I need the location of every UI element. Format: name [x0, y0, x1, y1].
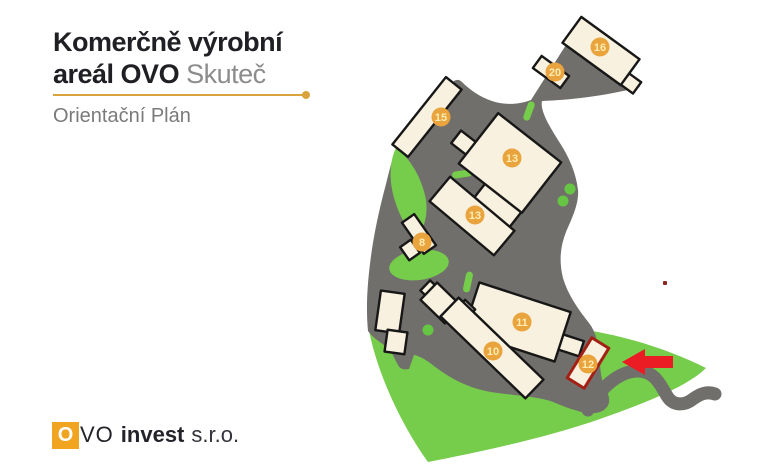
logo-orange-square: O [52, 422, 79, 449]
building-badge-20: 20 [546, 63, 565, 82]
svg-text:20: 20 [549, 67, 561, 79]
orientation-plan-page: Komerčně výrobní areál OVO Skuteč Orient… [0, 0, 759, 468]
building-badge-10: 10 [484, 342, 503, 361]
logo-vo-text: VO [80, 422, 114, 448]
site-map: 16201513138111012 [0, 0, 759, 468]
svg-text:13: 13 [506, 153, 518, 165]
building-badge-13: 13 [466, 206, 485, 225]
building-badge-8: 8 [413, 233, 432, 252]
tree-3 [558, 196, 569, 207]
small-building-2 [375, 291, 404, 334]
svg-text:11: 11 [516, 317, 528, 329]
svg-text:8: 8 [419, 237, 425, 249]
building-badge-12: 12 [579, 355, 598, 374]
svg-text:15: 15 [435, 112, 447, 124]
ovo-logo: O VO invest s.r.o. [52, 421, 239, 449]
svg-text:12: 12 [582, 359, 594, 371]
tree-2 [565, 184, 576, 195]
svg-text:13: 13 [469, 210, 481, 222]
red-dot-mark [663, 281, 667, 285]
building-badge-15: 15 [432, 108, 451, 127]
building-badge-11: 11 [513, 313, 532, 332]
building-badge-16: 16 [591, 38, 610, 57]
logo-invest-text: invest [121, 422, 185, 448]
tree-1 [423, 325, 434, 336]
svg-text:16: 16 [594, 42, 606, 54]
building-badge-13: 13 [503, 149, 522, 168]
small-building-3 [385, 330, 408, 355]
svg-text:10: 10 [487, 346, 499, 358]
logo-suffix-text: s.r.o. [191, 422, 239, 448]
